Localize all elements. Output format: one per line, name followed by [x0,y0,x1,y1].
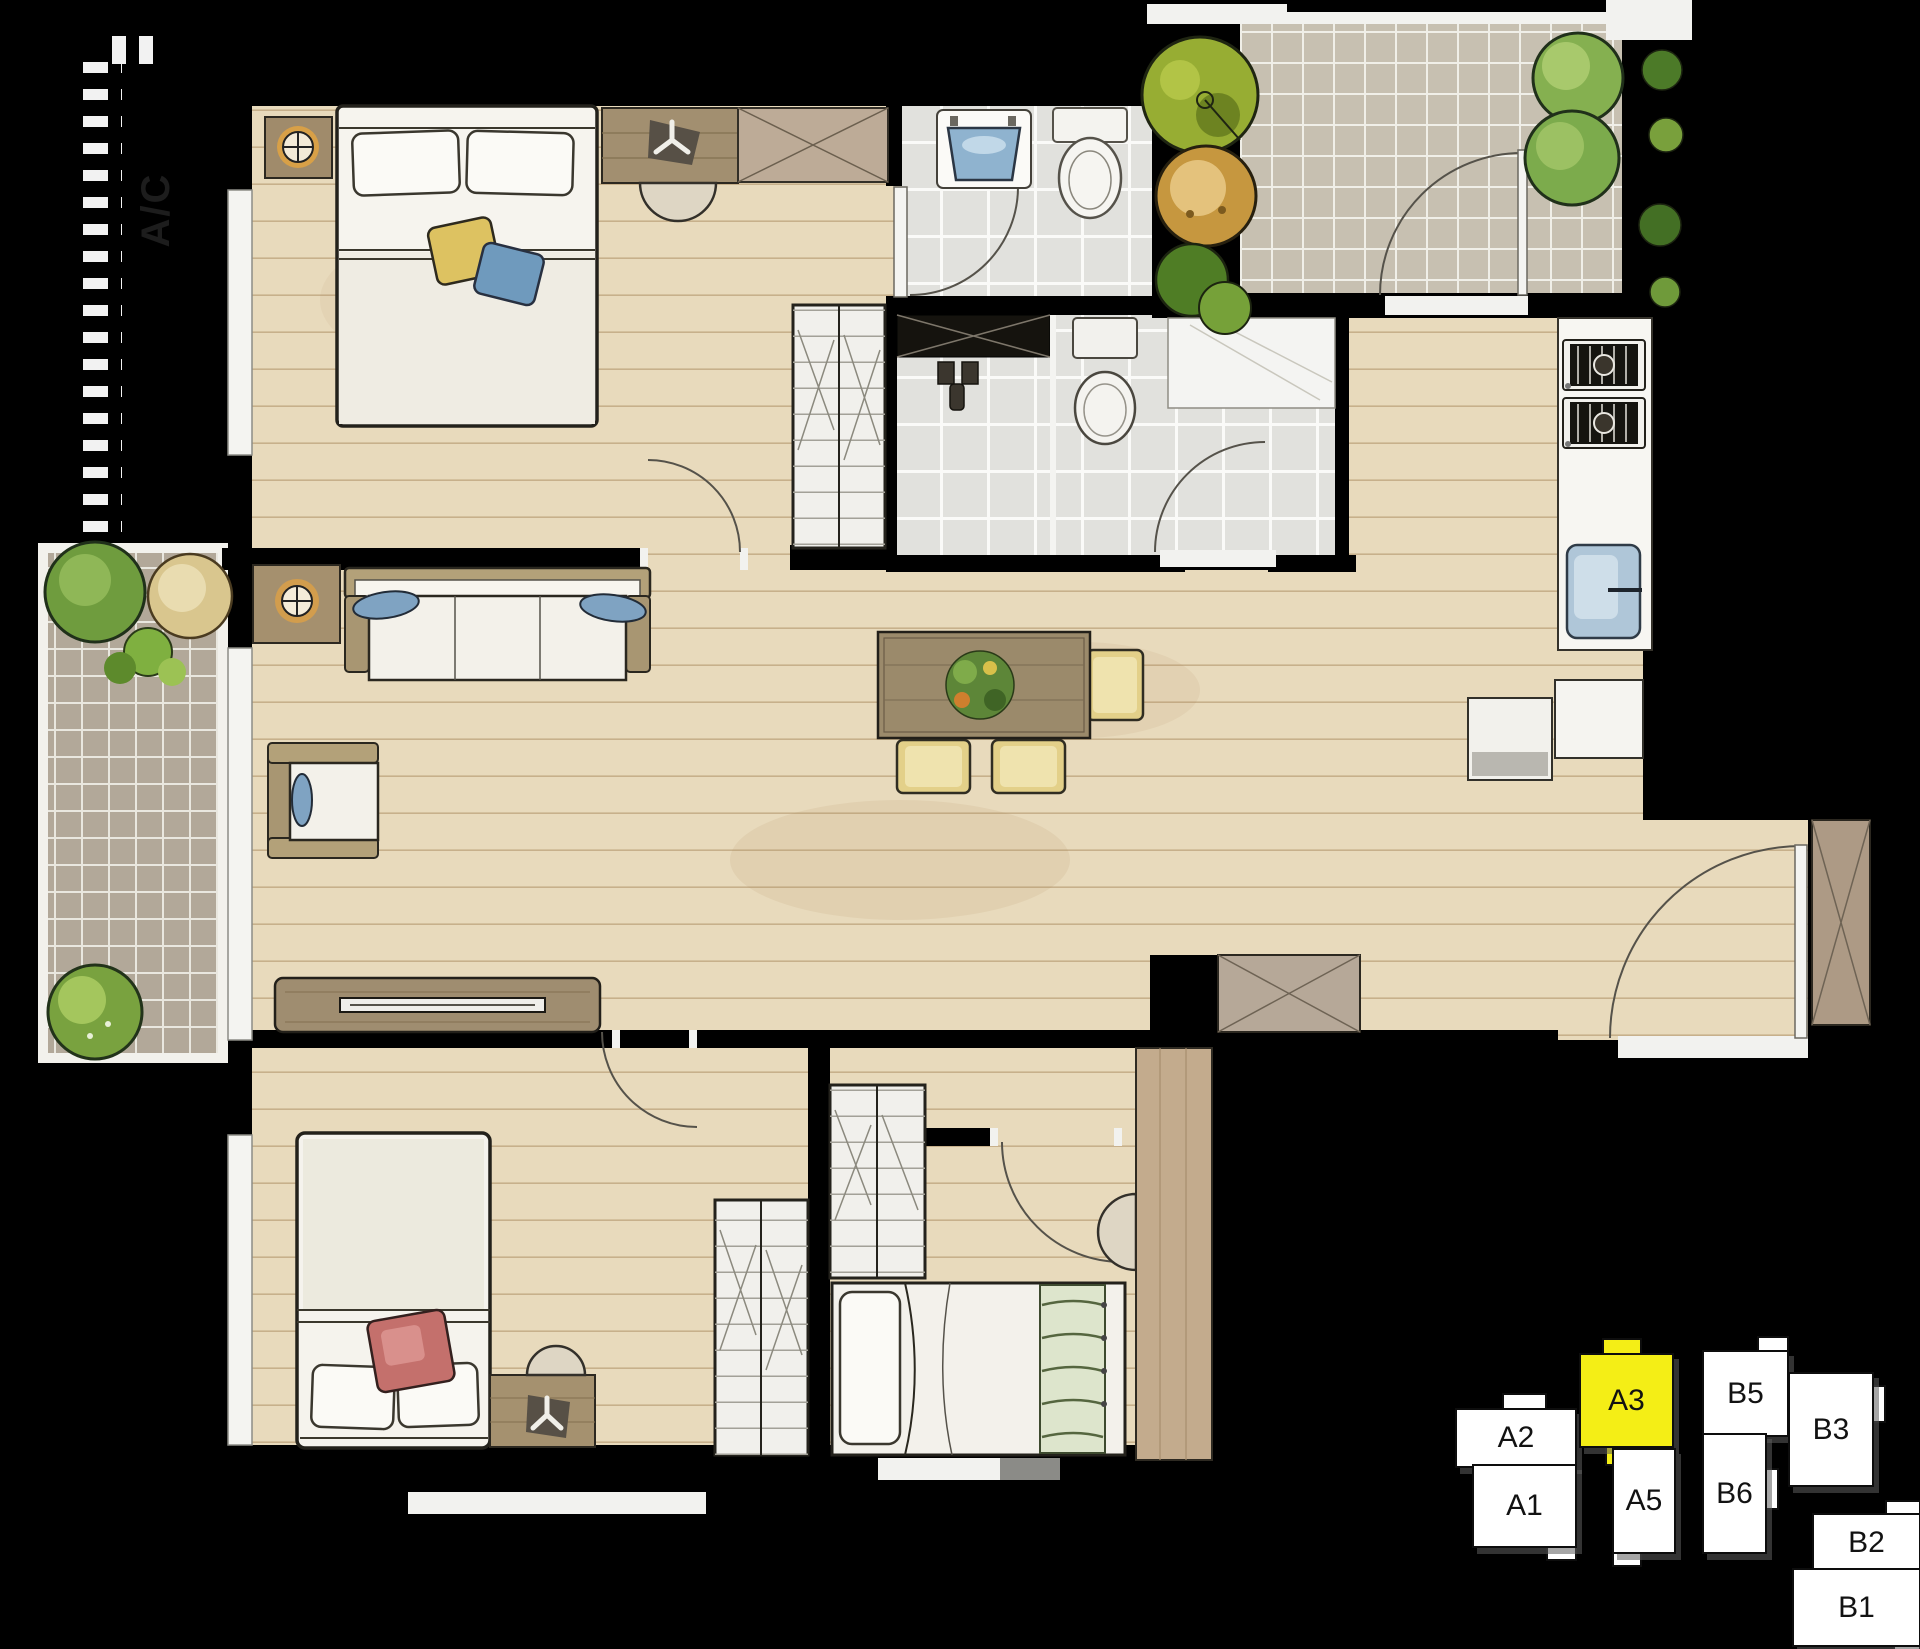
keyplan-unit-b5[interactable]: B5 [1702,1350,1789,1437]
unit-label: B5 [1727,1377,1764,1411]
unit-label: A1 [1506,1489,1543,1523]
unit-label: B6 [1716,1477,1753,1511]
keyplan-unit-b1[interactable]: B1 [1792,1568,1920,1647]
unit-label: B3 [1813,1413,1850,1447]
keyplan-unit-a2[interactable]: A2 [1455,1408,1577,1468]
unit-label: B2 [1848,1526,1885,1560]
unit-label: A2 [1498,1421,1535,1455]
keyplan-unit-a1[interactable]: A1 [1472,1464,1577,1548]
unit-label: A3 [1608,1384,1645,1418]
keyplan-unit-a3-highlighted[interactable]: A3 [1579,1353,1674,1448]
keyplan-unit-b2[interactable]: B2 [1812,1513,1920,1572]
unit-label: B1 [1838,1591,1875,1625]
unit-label: A5 [1626,1484,1663,1518]
keyplan-unit-b3[interactable]: B3 [1788,1372,1874,1487]
floor-plan-page: A/C A2 A1 A3 A5 B5 B6 B3 B2 B1 [0,0,1920,1649]
keyplan-unit-a5[interactable]: A5 [1612,1448,1676,1554]
unit-key-plan: A2 A1 A3 A5 B5 B6 B3 B2 B1 [0,0,1920,1649]
keyplan-unit-b6[interactable]: B6 [1702,1433,1767,1554]
